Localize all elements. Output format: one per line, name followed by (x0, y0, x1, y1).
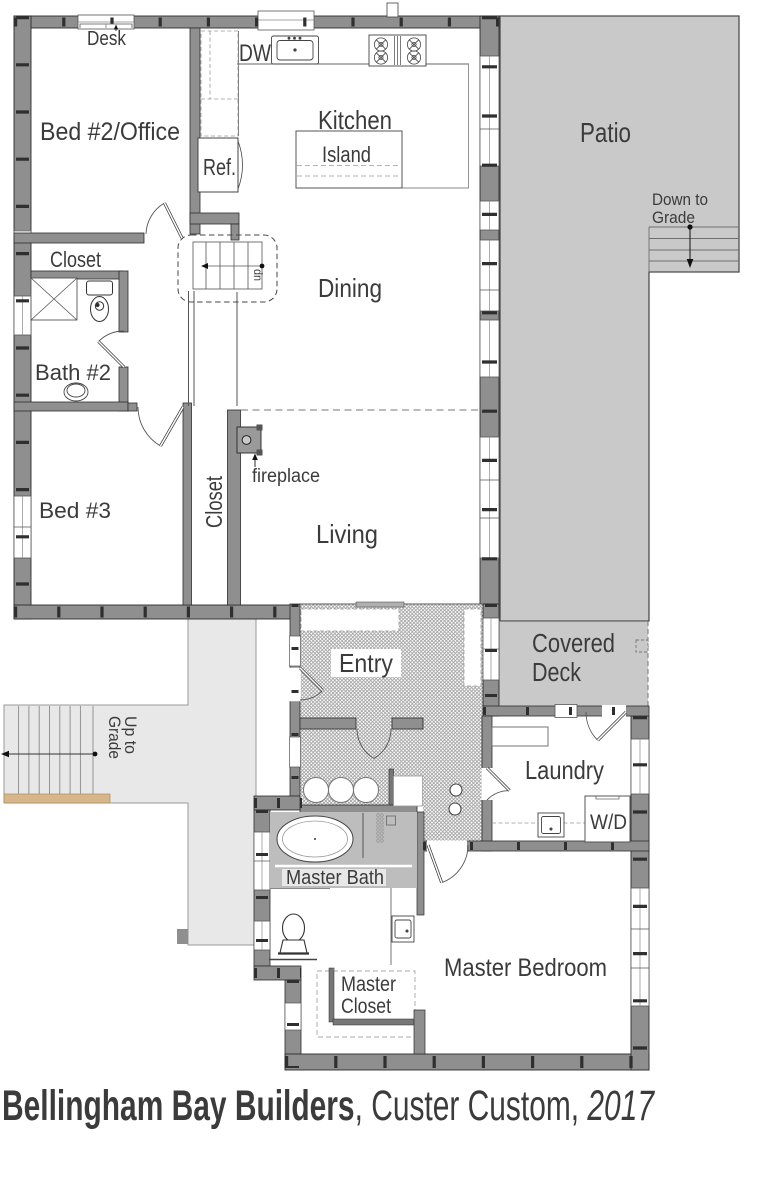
svg-text:Bed #3: Bed #3 (39, 498, 111, 523)
svg-text:Island: Island (322, 142, 371, 167)
svg-text:Bellingham Bay Builders, Custe: Bellingham Bay Builders, Custer Custom, … (2, 1082, 655, 1130)
svg-text:W/D: W/D (590, 811, 627, 834)
svg-text:Closet: Closet (50, 247, 101, 272)
svg-text:Deck: Deck (532, 659, 581, 687)
svg-text:Entry: Entry (339, 648, 393, 678)
svg-text:Laundry: Laundry (525, 755, 604, 785)
svg-text:Closet: Closet (201, 476, 227, 528)
svg-text:Dining: Dining (318, 273, 382, 303)
svg-text:Desk: Desk (87, 28, 127, 50)
svg-text:Patio: Patio (580, 117, 631, 148)
svg-text:up: up (250, 269, 264, 281)
svg-text:Closet: Closet (341, 995, 391, 1018)
svg-text:Master: Master (341, 973, 396, 996)
svg-text:Down to: Down to (652, 191, 708, 209)
svg-text:Master Bedroom: Master Bedroom (444, 954, 607, 982)
svg-text:Covered: Covered (532, 630, 615, 658)
svg-text:fireplace: fireplace (252, 466, 320, 487)
svg-text:Bed #2/Office: Bed #2/Office (40, 118, 180, 146)
svg-text:Kitchen: Kitchen (318, 105, 392, 135)
svg-text:Grade: Grade (105, 716, 123, 759)
svg-text:Living: Living (316, 519, 378, 549)
svg-text:Grade: Grade (652, 209, 695, 227)
svg-text:DW: DW (239, 40, 271, 67)
svg-text:Ref.: Ref. (203, 154, 236, 180)
svg-text:Master Bath: Master Bath (286, 867, 384, 889)
svg-text:Bath #2: Bath #2 (35, 360, 111, 385)
